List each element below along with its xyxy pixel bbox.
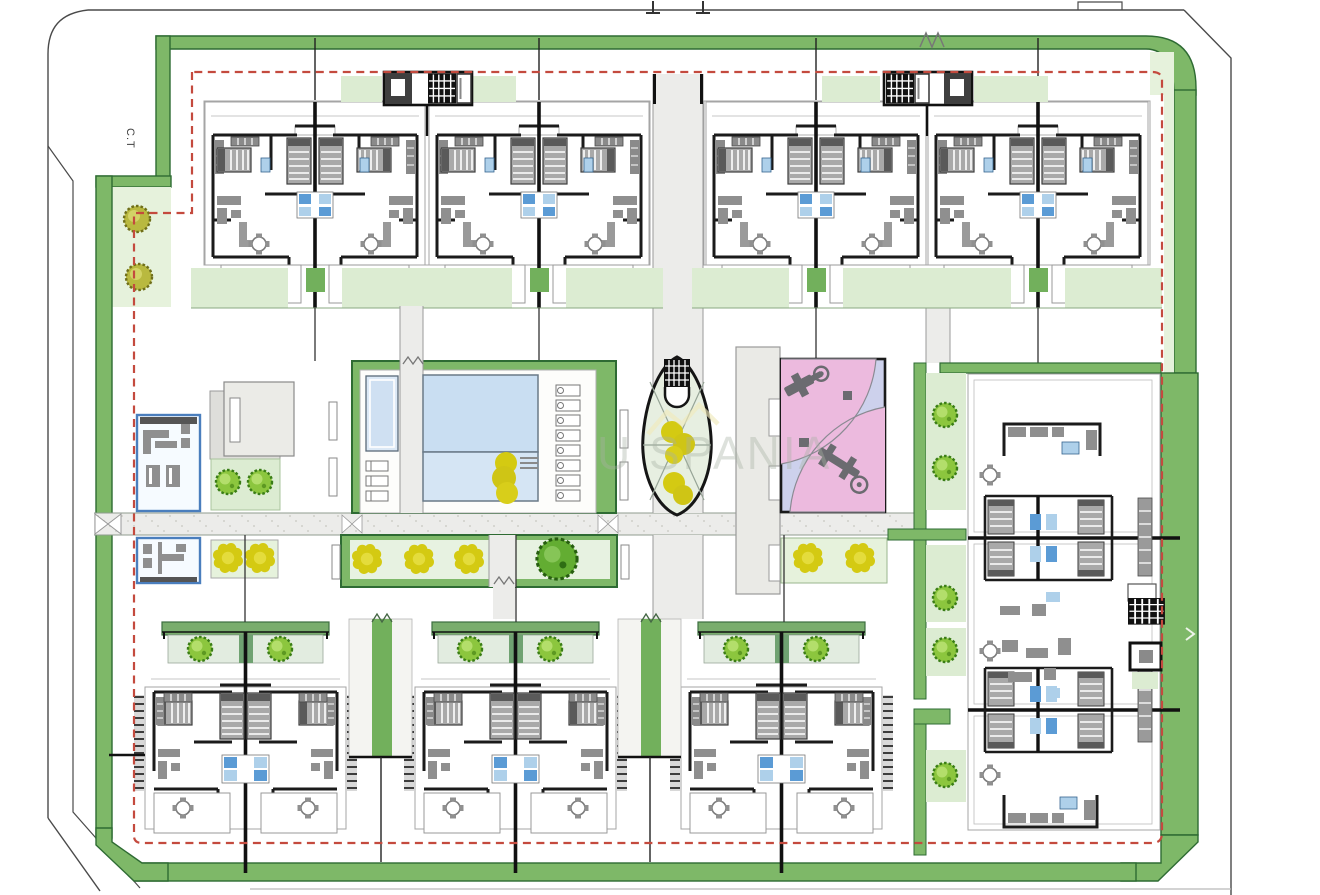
svg-text:C.T: C.T [124, 128, 136, 149]
svg-text:U SPANIA: U SPANIA [597, 427, 832, 479]
